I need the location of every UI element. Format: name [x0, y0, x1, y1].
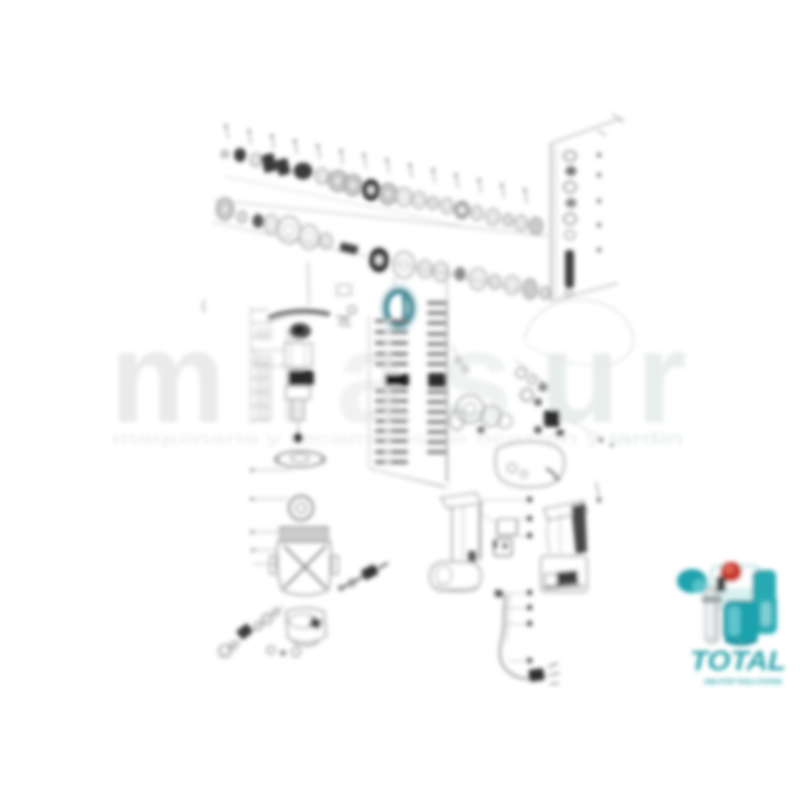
svg-text:ONE-STOP TOOLS STATION: ONE-STOP TOOLS STATION [704, 679, 782, 686]
svg-text:TOTAL: TOTAL [690, 645, 786, 676]
